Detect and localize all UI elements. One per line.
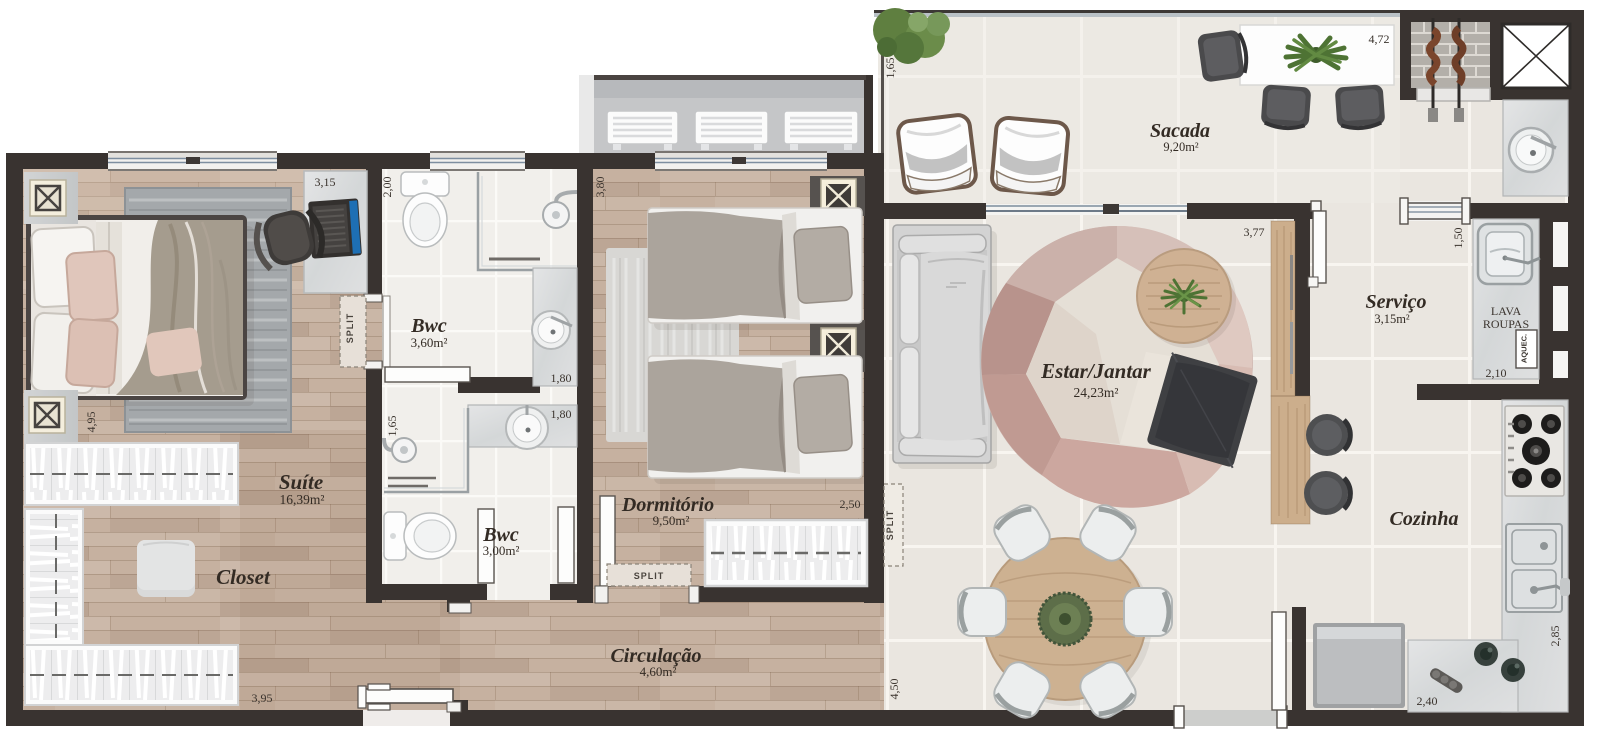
svg-text:3,15: 3,15 (315, 175, 336, 189)
svg-text:2,85: 2,85 (1548, 626, 1562, 647)
svg-text:4,60m²: 4,60m² (640, 664, 677, 679)
svg-text:2,00: 2,00 (380, 177, 394, 198)
svg-text:AQUEC.: AQUEC. (1520, 334, 1529, 363)
svg-text:Suíte: Suíte (279, 470, 323, 494)
svg-text:9,50m²: 9,50m² (653, 513, 690, 528)
svg-text:3,95: 3,95 (252, 691, 273, 705)
svg-text:3,15m²: 3,15m² (1374, 312, 1410, 326)
svg-text:Serviço: Serviço (1365, 291, 1426, 313)
svg-text:SPLIT: SPLIT (634, 571, 665, 581)
svg-text:4,50: 4,50 (887, 679, 901, 700)
svg-text:2,50: 2,50 (840, 497, 861, 511)
svg-text:3,77: 3,77 (1244, 225, 1265, 239)
svg-text:4,72: 4,72 (1369, 32, 1390, 46)
svg-text:3,80: 3,80 (593, 177, 607, 198)
svg-text:4,95: 4,95 (84, 412, 98, 433)
svg-text:SPLIT: SPLIT (885, 510, 895, 541)
svg-text:ROUPAS: ROUPAS (1483, 317, 1529, 331)
svg-text:2,10: 2,10 (1486, 366, 1507, 380)
svg-text:1,80: 1,80 (551, 407, 572, 421)
svg-text:1,80: 1,80 (551, 371, 572, 385)
svg-text:3,00m²: 3,00m² (483, 543, 520, 558)
svg-text:SPLIT: SPLIT (345, 313, 355, 344)
svg-text:Bwc: Bwc (410, 315, 447, 337)
svg-text:Estar/Jantar: Estar/Jantar (1040, 359, 1152, 383)
svg-text:3,60m²: 3,60m² (411, 335, 448, 350)
svg-text:9,20m²: 9,20m² (1163, 140, 1199, 154)
svg-text:1,65: 1,65 (883, 58, 897, 79)
svg-text:LAVA: LAVA (1491, 304, 1522, 318)
svg-text:2,40: 2,40 (1417, 694, 1438, 708)
svg-text:16,39m²: 16,39m² (280, 492, 325, 507)
svg-text:24,23m²: 24,23m² (1074, 385, 1119, 400)
svg-text:Cozinha: Cozinha (1390, 508, 1459, 530)
svg-text:Closet: Closet (216, 565, 271, 589)
svg-text:1,50: 1,50 (1451, 228, 1465, 249)
svg-text:1,65: 1,65 (385, 416, 399, 437)
svg-text:Sacada: Sacada (1150, 120, 1210, 142)
